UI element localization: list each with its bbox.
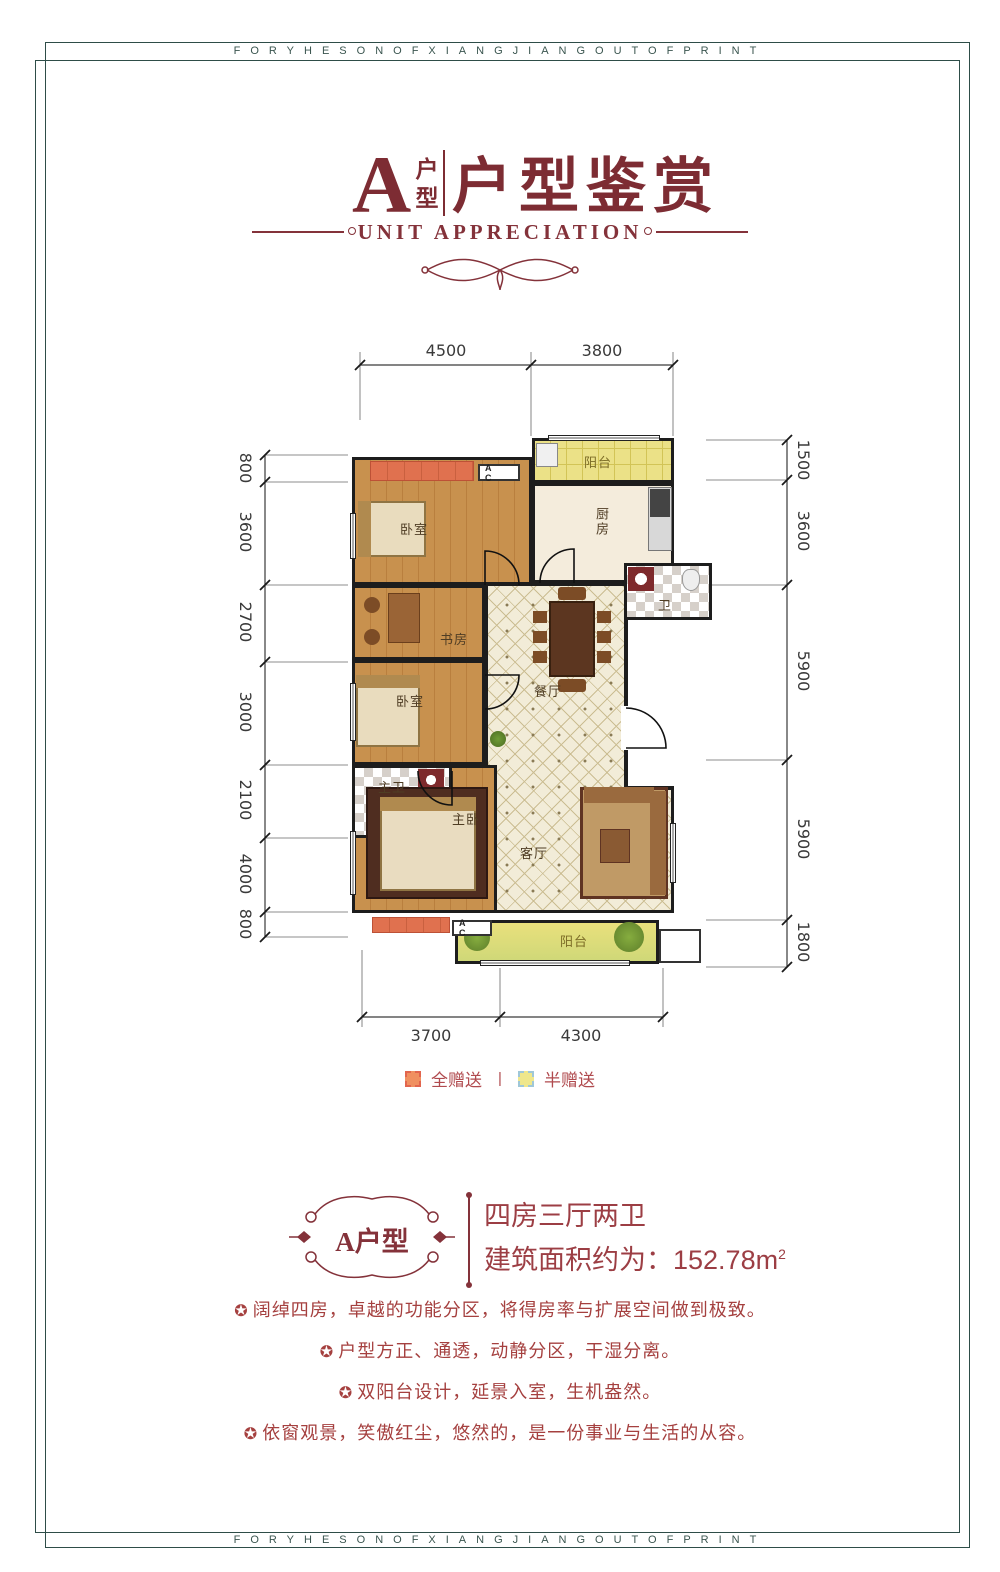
- subtitle-row: UNIT APPRECIATION: [0, 220, 1000, 244]
- subtitle: UNIT APPRECIATION: [0, 220, 1000, 245]
- feature-bullet-icon: ✪: [234, 1303, 248, 1320]
- flourish-icon: [415, 250, 585, 292]
- feature-text: 户型方正、通透，动静分区，干湿分离。: [338, 1341, 680, 1361]
- label-master-bath: 主卫: [378, 777, 406, 796]
- title-divider: [443, 150, 445, 216]
- dim-right-3: 5900: [794, 819, 813, 860]
- dim-bottom-0: 3700: [395, 1026, 467, 1045]
- subtitle-right-line: [656, 231, 748, 233]
- dim-right-1: 3600: [794, 511, 813, 552]
- dim-top-0: 4500: [410, 341, 482, 360]
- area-spec: 建筑面积约为：152.78m2: [484, 1238, 786, 1277]
- dim-right-0: 1500: [794, 440, 813, 481]
- dim-right-2: 5900: [794, 651, 813, 692]
- unit-badge: A户型: [283, 1186, 461, 1288]
- feature-list: ✪阔绰四房，卓越的功能分区，将得房率与扩展空间做到极致。 ✪户型方正、通透，动静…: [0, 1296, 1000, 1460]
- area-value: 建筑面积约为：152.78m: [484, 1245, 778, 1275]
- layout-spec: 四房三厅两卫: [484, 1194, 646, 1233]
- legend-separator: |: [492, 1070, 508, 1087]
- dim-left-3: 3000: [236, 692, 255, 733]
- area-superscript: 2: [778, 1246, 786, 1262]
- unit-word-bottom: 型: [414, 185, 440, 214]
- feature-text: 双阳台设计，延景入室，生机盎然。: [357, 1382, 661, 1402]
- label-bedroom-mid: 卧室: [396, 691, 424, 710]
- label-balcony-top: 阳台: [584, 452, 612, 471]
- label-study: 书房: [440, 629, 468, 648]
- unit-word: 户 型: [414, 156, 440, 214]
- unit-letter: A: [352, 144, 411, 226]
- legend-half-label: 半赠送: [544, 1066, 595, 1091]
- dim-left-0: 800: [236, 453, 255, 484]
- legend-full-swatch: [405, 1071, 421, 1087]
- floor-plan: A C A C: [352, 435, 712, 967]
- feature-text: 依窗观景，笑傲红尘，悠然的，是一份事业与生活的从容。: [262, 1423, 756, 1443]
- label-living: 客厅: [520, 843, 548, 862]
- legend: 全赠送 | 半赠送: [0, 1066, 1000, 1091]
- feature-item: ✪户型方正、通透，动静分区，干湿分离。: [0, 1337, 1000, 1363]
- feature-bullet-icon: ✪: [320, 1344, 334, 1361]
- dim-left-5: 4000: [236, 854, 255, 895]
- bottom-band-text: FORYHESONOFXIANGJIANGOUTOFPRINT: [0, 1534, 1000, 1546]
- legend-full-label: 全赠送: [431, 1066, 482, 1091]
- dim-right-4: 1800: [794, 922, 813, 963]
- label-dining: 餐厅: [534, 681, 562, 700]
- top-band-text: FORYHESONOFXIANGJIANGOUTOFPRINT: [0, 45, 1000, 57]
- label-balcony-bottom: 阳台: [560, 931, 588, 950]
- label-bath: 卫: [658, 595, 672, 614]
- feature-text: 阔绰四房，卓越的功能分区，将得房率与扩展空间做到极致。: [253, 1300, 766, 1320]
- page-title: 户型鉴赏: [452, 138, 720, 225]
- subtitle-right-ornament-icon: [644, 227, 652, 235]
- feature-bullet-icon: ✪: [339, 1385, 353, 1402]
- badge-label: A户型: [283, 1220, 461, 1259]
- info-divider: [468, 1196, 470, 1284]
- poster-page: FORYHESONOFXIANGJIANGOUTOFPRINT FORYHESO…: [0, 0, 1000, 1572]
- dim-left-4: 2100: [236, 780, 255, 821]
- legend-half-swatch: [518, 1071, 534, 1087]
- dim-bottom-1: 4300: [545, 1026, 617, 1045]
- label-bedroom-top: 卧室: [400, 519, 428, 538]
- dim-top-1: 3800: [566, 341, 638, 360]
- feature-item: ✪阔绰四房，卓越的功能分区，将得房率与扩展空间做到极致。: [0, 1296, 1000, 1322]
- dim-left-2: 2700: [236, 602, 255, 643]
- unit-word-top: 户: [414, 156, 440, 185]
- feature-item: ✪双阳台设计，延景入室，生机盎然。: [0, 1378, 1000, 1404]
- dim-left-6: 800: [236, 909, 255, 940]
- feature-item: ✪依窗观景，笑傲红尘，悠然的，是一份事业与生活的从容。: [0, 1419, 1000, 1445]
- label-kitchen: 厨房: [592, 507, 611, 537]
- label-master-bedroom: 主卧: [452, 809, 480, 828]
- dim-left-1: 3600: [236, 512, 255, 553]
- feature-bullet-icon: ✪: [244, 1426, 258, 1443]
